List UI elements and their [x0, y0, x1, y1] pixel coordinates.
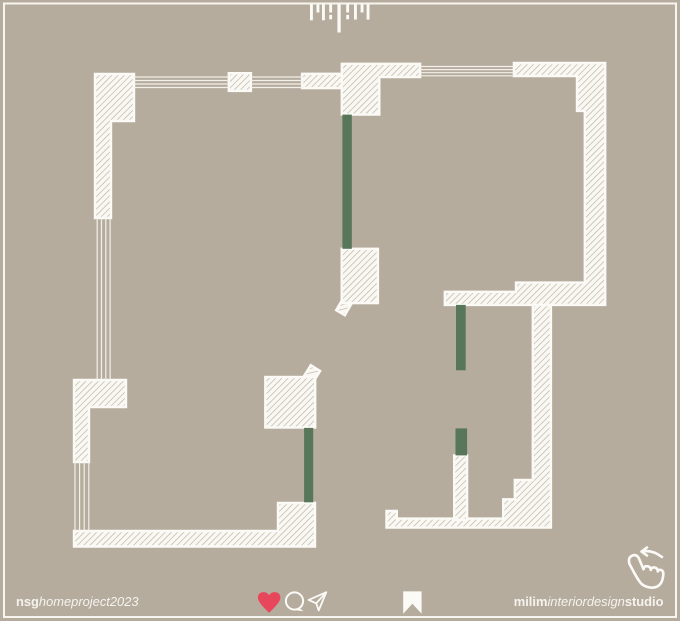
svg-text:nsghomeproject2023: nsghomeproject2023	[16, 594, 139, 609]
svg-text:miliminteriordesignstudio: miliminteriordesignstudio	[514, 594, 664, 609]
